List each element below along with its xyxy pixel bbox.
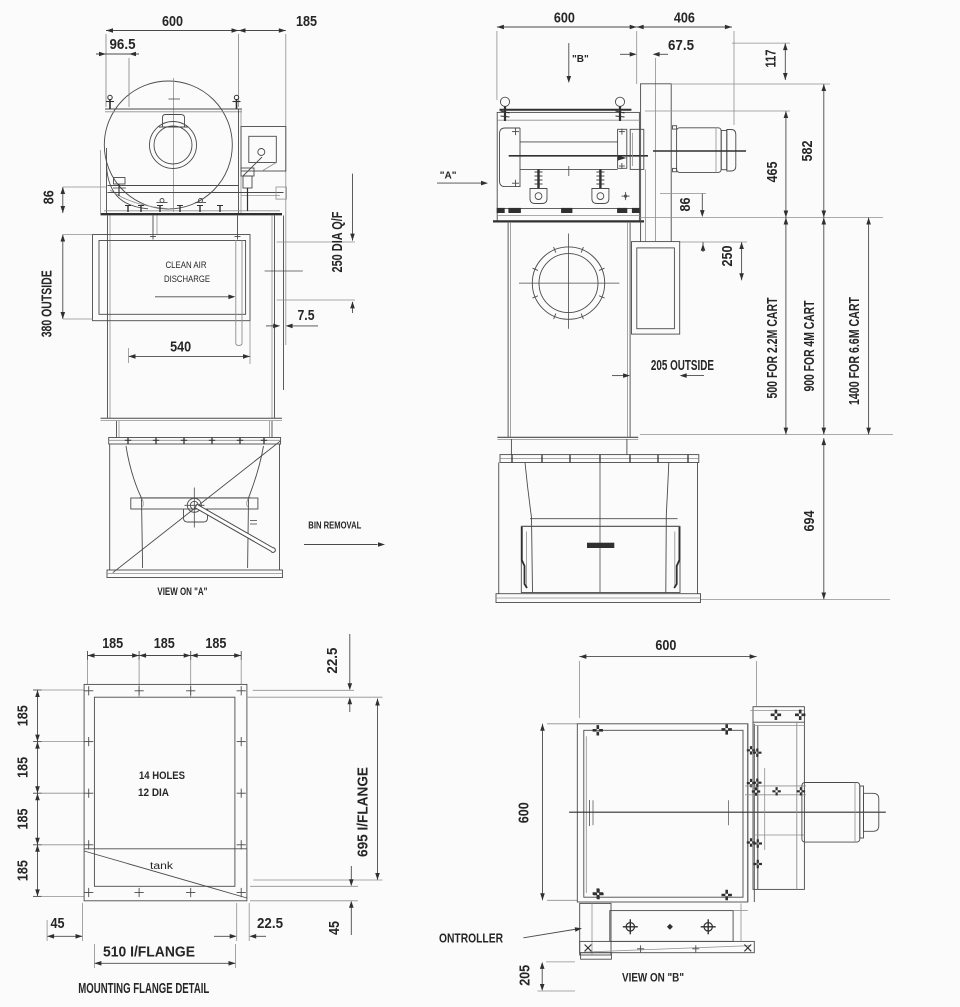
svg-text:7.5: 7.5 xyxy=(298,308,315,324)
svg-text:185: 185 xyxy=(102,636,123,652)
svg-text:22.5: 22.5 xyxy=(325,648,341,674)
svg-text:"B": "B" xyxy=(572,54,589,65)
svg-text:185: 185 xyxy=(154,636,175,652)
svg-text:tank: tank xyxy=(150,861,174,872)
svg-text:86: 86 xyxy=(41,190,57,204)
svg-text:DISCHARGE: DISCHARGE xyxy=(164,274,210,285)
svg-text:600: 600 xyxy=(655,638,676,654)
svg-text:117: 117 xyxy=(763,49,779,67)
svg-text:14 HOLES: 14 HOLES xyxy=(139,770,185,782)
svg-text:ONTROLLER: ONTROLLER xyxy=(439,931,503,946)
svg-text:"A": "A" xyxy=(440,170,457,181)
svg-text:45: 45 xyxy=(51,916,65,932)
svg-text:185: 185 xyxy=(16,757,32,778)
svg-text:600: 600 xyxy=(554,11,575,27)
svg-text:86: 86 xyxy=(678,197,694,211)
svg-text:695 I/FLANGE: 695 I/FLANGE xyxy=(356,767,372,857)
svg-text:600: 600 xyxy=(162,14,183,30)
svg-text:MOUNTING FLANGE DETAIL: MOUNTING FLANGE DETAIL xyxy=(78,981,209,997)
svg-text:694: 694 xyxy=(802,510,818,531)
svg-text:380 OUTSIDE: 380 OUTSIDE xyxy=(39,270,55,337)
svg-text:250: 250 xyxy=(720,245,736,266)
svg-text:600: 600 xyxy=(516,802,532,823)
svg-text:900 FOR 4M CART: 900 FOR 4M CART xyxy=(802,300,818,391)
svg-text:1400 FOR 6.6M CART: 1400 FOR 6.6M CART xyxy=(847,297,863,405)
svg-text:185: 185 xyxy=(16,860,32,881)
svg-text:CLEAN AIR: CLEAN AIR xyxy=(166,260,207,271)
svg-text:BIN REMOVAL: BIN REMOVAL xyxy=(308,520,361,532)
svg-text:185: 185 xyxy=(16,808,32,829)
svg-text:185: 185 xyxy=(205,636,226,652)
svg-text:12 DIA: 12 DIA xyxy=(138,787,169,799)
svg-text:205: 205 xyxy=(518,965,534,986)
svg-text:185: 185 xyxy=(296,14,317,30)
svg-text:22.5: 22.5 xyxy=(257,916,283,932)
svg-text:VIEW ON "A": VIEW ON "A" xyxy=(157,586,207,598)
svg-text:185: 185 xyxy=(16,705,32,726)
svg-text:VIEW ON "B": VIEW ON "B" xyxy=(622,973,684,985)
svg-text:205 OUTSIDE: 205 OUTSIDE xyxy=(651,358,714,374)
svg-text:500 FOR 2.2M CART: 500 FOR 2.2M CART xyxy=(765,297,781,398)
svg-text:540: 540 xyxy=(170,340,191,356)
svg-text:96.5: 96.5 xyxy=(110,37,136,53)
svg-text:45: 45 xyxy=(327,921,343,935)
svg-text:67.5: 67.5 xyxy=(668,38,694,54)
svg-text:465: 465 xyxy=(765,161,781,182)
svg-text:510 I/FLANGE: 510 I/FLANGE xyxy=(103,944,195,961)
svg-text:250 DIA Q/F: 250 DIA Q/F xyxy=(330,211,346,272)
svg-text:582: 582 xyxy=(800,140,816,161)
svg-text:406: 406 xyxy=(674,11,695,27)
